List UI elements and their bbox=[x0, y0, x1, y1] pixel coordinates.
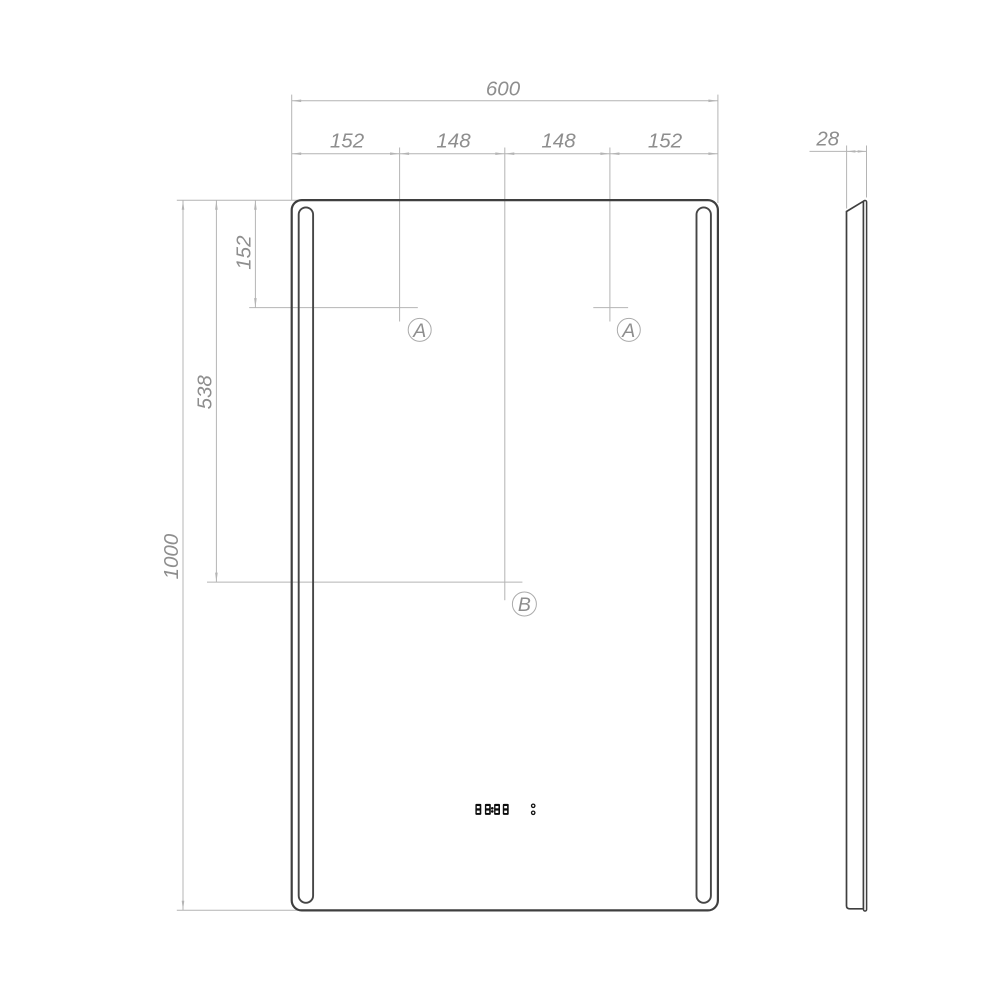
svg-text:538: 538 bbox=[194, 375, 217, 410]
svg-text:A: A bbox=[412, 320, 426, 342]
svg-text:A: A bbox=[621, 320, 635, 342]
svg-text:148: 148 bbox=[436, 129, 471, 152]
svg-text:148: 148 bbox=[541, 129, 576, 152]
svg-text:600: 600 bbox=[486, 78, 521, 101]
svg-text:152: 152 bbox=[233, 235, 256, 270]
svg-text:28: 28 bbox=[815, 127, 839, 150]
svg-text:1000: 1000 bbox=[160, 533, 183, 579]
svg-text:B: B bbox=[518, 594, 531, 616]
svg-text:152: 152 bbox=[648, 129, 683, 152]
svg-text:152: 152 bbox=[330, 129, 365, 152]
